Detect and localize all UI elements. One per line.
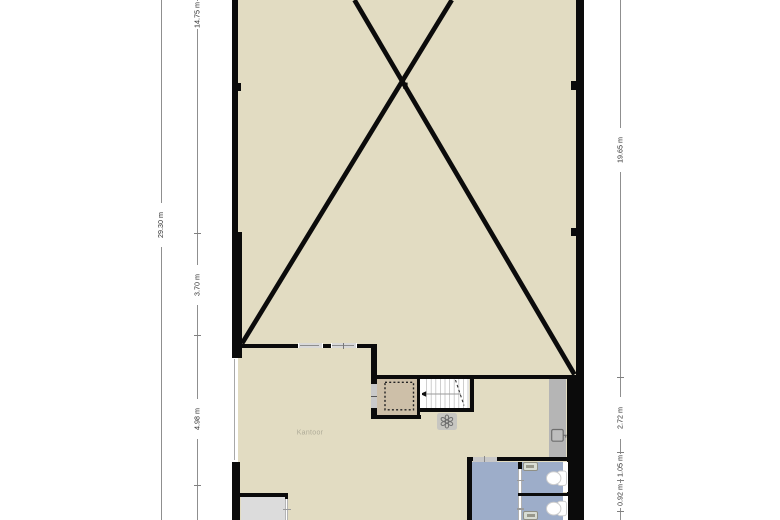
svg-text:2.72 m: 2.72 m xyxy=(615,407,624,429)
svg-text:3.70 m: 3.70 m xyxy=(192,274,201,296)
svg-text:4.98 m: 4.98 m xyxy=(192,408,201,430)
svg-text:29.30 m: 29.30 m xyxy=(156,212,165,238)
svg-text:19.65 m: 19.65 m xyxy=(615,137,624,163)
svg-text:1.05 m: 1.05 m xyxy=(615,455,624,477)
svg-text:14.75 m: 14.75 m xyxy=(192,2,201,28)
svg-text:0.92 m: 0.92 m xyxy=(615,484,624,506)
